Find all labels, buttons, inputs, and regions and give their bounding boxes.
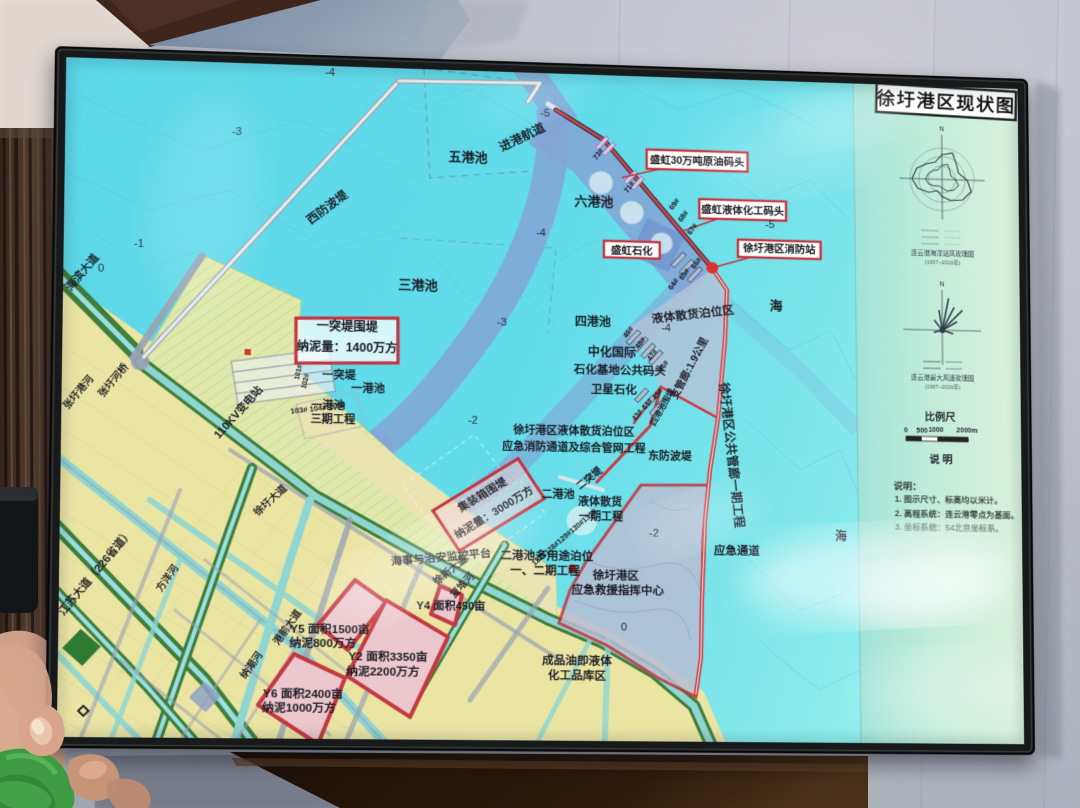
svg-text:应急通道: 应急通道	[714, 544, 760, 558]
svg-text:卫星石化: 卫星石化	[591, 382, 637, 396]
svg-text:四港池: 四港池	[575, 314, 611, 329]
svg-text:比例尺: 比例尺	[925, 411, 956, 424]
svg-text:一、二期工程: 一、二期工程	[510, 563, 580, 578]
svg-text:500: 500	[916, 428, 928, 435]
svg-text:纳泥量：1400万方: 纳泥量：1400万方	[297, 339, 398, 356]
svg-text:纳泥800万方: 纳泥800万方	[289, 636, 357, 651]
svg-text:-4: -4	[536, 227, 546, 239]
svg-text:五港池: 五港池	[448, 148, 487, 165]
svg-text:N: N	[939, 281, 944, 288]
svg-text:一突堤围堤: 一突堤围堤	[317, 318, 379, 334]
svg-text:一突堤: 一突堤	[322, 368, 357, 382]
svg-text:-1: -1	[134, 238, 144, 250]
svg-text:液体散货: 液体散货	[578, 495, 622, 509]
svg-text:石化基地公共码头: 石化基地公共码头	[573, 362, 666, 378]
svg-text:2. 高程系统：连云港零点为基面。: 2. 高程系统：连云港零点为基面。	[895, 508, 1019, 520]
svg-text:Y6 面积2400亩: Y6 面积2400亩	[263, 687, 343, 702]
svg-text:成品油即液体: 成品油即液体	[542, 654, 612, 668]
svg-text:-2: -2	[468, 415, 478, 427]
svg-text:Y4 面积450亩: Y4 面积450亩	[416, 599, 485, 614]
svg-text:三期工程: 三期工程	[310, 412, 355, 427]
svg-text:盛虹石化: 盛虹石化	[611, 244, 653, 258]
svg-text:纳泥1000万方: 纳泥1000万方	[262, 701, 336, 716]
svg-text:六港池: 六港池	[574, 193, 613, 209]
svg-text:0: 0	[904, 428, 908, 435]
svg-text:应急救援指挥中心: 应急救援指挥中心	[572, 583, 665, 598]
svg-text:二港池: 二港池	[541, 487, 574, 501]
svg-text:0: 0	[98, 263, 105, 275]
svg-text:东防波堤: 东防波堤	[648, 449, 693, 463]
svg-text:海: 海	[770, 297, 783, 313]
svg-text:1000: 1000	[928, 427, 943, 434]
svg-text:-4: -4	[661, 323, 671, 335]
svg-text:徐圩港区: 徐圩港区	[592, 568, 640, 582]
svg-text:中化国际: 中化国际	[588, 344, 636, 360]
svg-text:Y5 面积1500亩: Y5 面积1500亩	[290, 622, 370, 637]
svg-text:盛虹液体化工码头: 盛虹液体化工码头	[701, 203, 784, 218]
svg-text:说明：: 说明：	[894, 480, 922, 492]
svg-text:Y2 面积3350亩: Y2 面积3350亩	[348, 650, 428, 665]
svg-text:1. 图示尺寸、标高均以米计。: 1. 图示尺寸、标高均以米计。	[895, 494, 1003, 505]
svg-text:说 明: 说 明	[929, 453, 953, 466]
svg-text:化工品库区: 化工品库区	[548, 668, 607, 682]
svg-text:徐圩港区消防站: 徐圩港区消防站	[742, 242, 816, 256]
svg-text:纳泥2200万方: 纳泥2200万方	[346, 664, 420, 679]
svg-text:三港池: 三港池	[398, 276, 438, 292]
svg-text:-3: -3	[497, 317, 507, 329]
svg-text:N: N	[939, 126, 944, 133]
svg-text:-5: -5	[765, 219, 775, 231]
svg-text:一港池: 一港池	[351, 381, 385, 395]
svg-text:0: 0	[621, 622, 627, 634]
svg-text:2000m: 2000m	[956, 427, 977, 434]
